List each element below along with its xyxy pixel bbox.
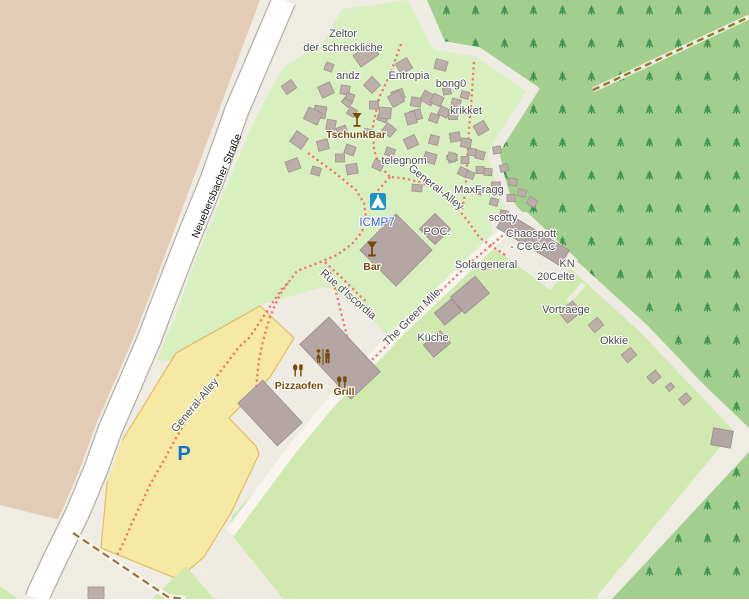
svg-text:krikket: krikket bbox=[450, 105, 482, 117]
svg-text:P: P bbox=[177, 443, 190, 465]
svg-text:bong0: bong0 bbox=[436, 78, 467, 90]
svg-text:ICMP7: ICMP7 bbox=[359, 217, 394, 229]
svg-text:MaxFragg: MaxFragg bbox=[454, 184, 504, 196]
svg-text:Entropia: Entropia bbox=[389, 70, 431, 82]
svg-text:Grill: Grill bbox=[333, 386, 354, 398]
svg-text:andz: andz bbox=[336, 70, 360, 82]
svg-text:- CCCAC: - CCCAC bbox=[510, 241, 556, 253]
svg-text:TschunkBar: TschunkBar bbox=[326, 129, 386, 141]
svg-text:der schreckliche: der schreckliche bbox=[303, 42, 382, 54]
svg-text:Pizzaofen: Pizzaofen bbox=[275, 380, 323, 392]
svg-text:Vortraege: Vortraege bbox=[542, 304, 590, 316]
svg-text:Küche: Küche bbox=[417, 332, 448, 344]
svg-text:scotty: scotty bbox=[489, 212, 518, 224]
svg-text:Zeltor: Zeltor bbox=[329, 28, 357, 40]
svg-text:20Celte: 20Celte bbox=[537, 271, 575, 283]
svg-text:Solargeneral: Solargeneral bbox=[455, 259, 517, 271]
svg-text:Chaospott: Chaospott bbox=[506, 228, 556, 240]
svg-text:telegnom: telegnom bbox=[381, 155, 426, 167]
svg-text:Bar: Bar bbox=[363, 261, 381, 273]
svg-text:KN: KN bbox=[559, 258, 574, 270]
svg-text:POC.: POC. bbox=[424, 226, 451, 238]
svg-text:Okkie: Okkie bbox=[600, 335, 628, 347]
